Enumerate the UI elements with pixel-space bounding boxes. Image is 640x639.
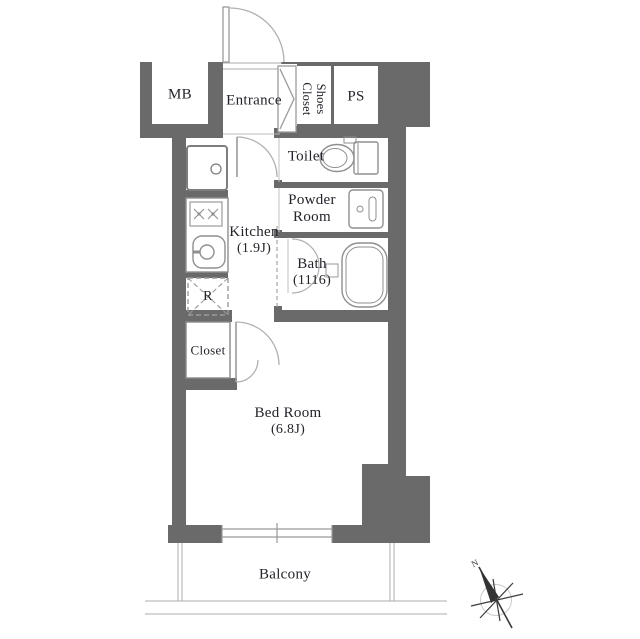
sink-icon [193, 236, 225, 268]
entrance-label: Entrance [226, 93, 282, 110]
wall-east [388, 127, 406, 468]
washer-space [187, 146, 227, 190]
bath-name: Bath [297, 256, 327, 272]
kitchen-label: Kitchen (1.9J) [229, 207, 279, 273]
wall-nub-powder [274, 180, 282, 188]
kitchen-name: Kitchen [229, 224, 279, 240]
washbasin-icon [349, 190, 383, 228]
balcony-window [222, 523, 332, 543]
floor-plan: N MB Entrance Shoes Closet PS Toilet Pow… [0, 0, 640, 639]
wall-kitchen-sep2 [183, 272, 228, 278]
wall-powder-bath [278, 232, 388, 238]
wall-closet-bottom [172, 378, 237, 390]
bath-label: Bath (1116) [293, 239, 331, 305]
toilet-icon [320, 137, 378, 174]
bedroom-door [236, 322, 279, 382]
wall-kitchen-sep1 [183, 190, 228, 198]
bedroom-size: (6.8J) [255, 422, 322, 438]
toilet-label: Toilet [288, 149, 325, 166]
wall-bedroom-top-left [172, 310, 232, 322]
balcony-label: Balcony [259, 567, 311, 584]
stove-icon [190, 202, 222, 226]
bathtub-icon [342, 243, 387, 307]
wall-toilet-top [281, 124, 388, 138]
compass-icon: N [470, 557, 523, 628]
wall-nub-toilet [274, 128, 282, 138]
kitchen-size: (1.9J) [229, 241, 279, 257]
refrigerator-label: R [203, 289, 213, 305]
bedroom-label: Bed Room (6.8J) [255, 388, 322, 454]
bedroom-name: Bed Room [255, 405, 322, 421]
wall-bottom-left [168, 525, 222, 543]
mb-label: MB [168, 87, 192, 104]
wall-bottom-right [332, 525, 430, 543]
wall-nub-bath-bottom [274, 306, 282, 322]
bath-size: (1116) [293, 273, 331, 289]
wall-bath-bottom [278, 310, 406, 322]
kitchen-counter [186, 198, 228, 272]
ps-label: PS [347, 89, 364, 106]
powder-room-label: Powder Room [288, 192, 336, 226]
compass-north-label: N [470, 557, 481, 569]
closet-label: Closet [190, 344, 225, 359]
entrance-door [223, 7, 284, 134]
shoes-closet-label: Shoes Closet [300, 82, 328, 115]
wall-toilet-powder [278, 182, 388, 188]
